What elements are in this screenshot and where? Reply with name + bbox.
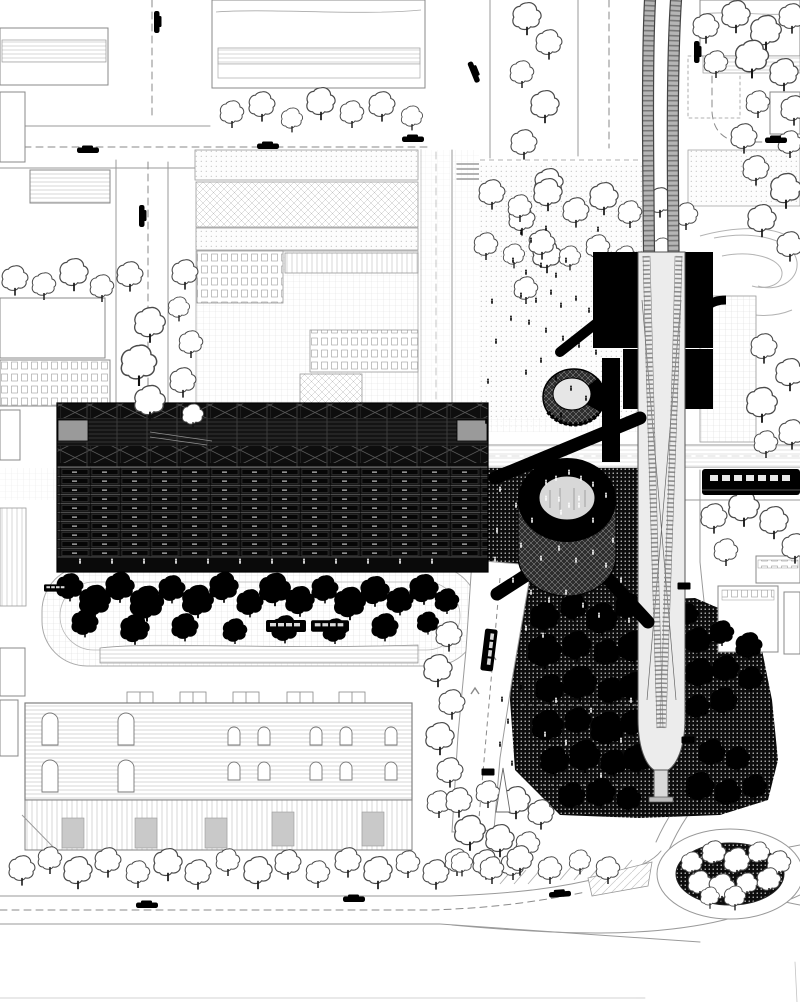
monorail-capsule	[638, 252, 685, 802]
site-plan-drawing	[0, 0, 800, 1002]
main-building	[57, 403, 488, 572]
window-band-facade	[57, 467, 488, 557]
train	[702, 469, 800, 495]
black-slab	[602, 358, 620, 462]
ring-pavilion	[518, 458, 616, 596]
round-pavilion	[543, 369, 605, 425]
roof-panel-west	[58, 420, 88, 441]
superblock-textured	[195, 150, 418, 408]
roof-panel-east	[457, 420, 487, 441]
site-plan-canvas	[0, 0, 800, 1002]
city-block-north	[212, 0, 425, 88]
mast-stem	[654, 770, 668, 798]
